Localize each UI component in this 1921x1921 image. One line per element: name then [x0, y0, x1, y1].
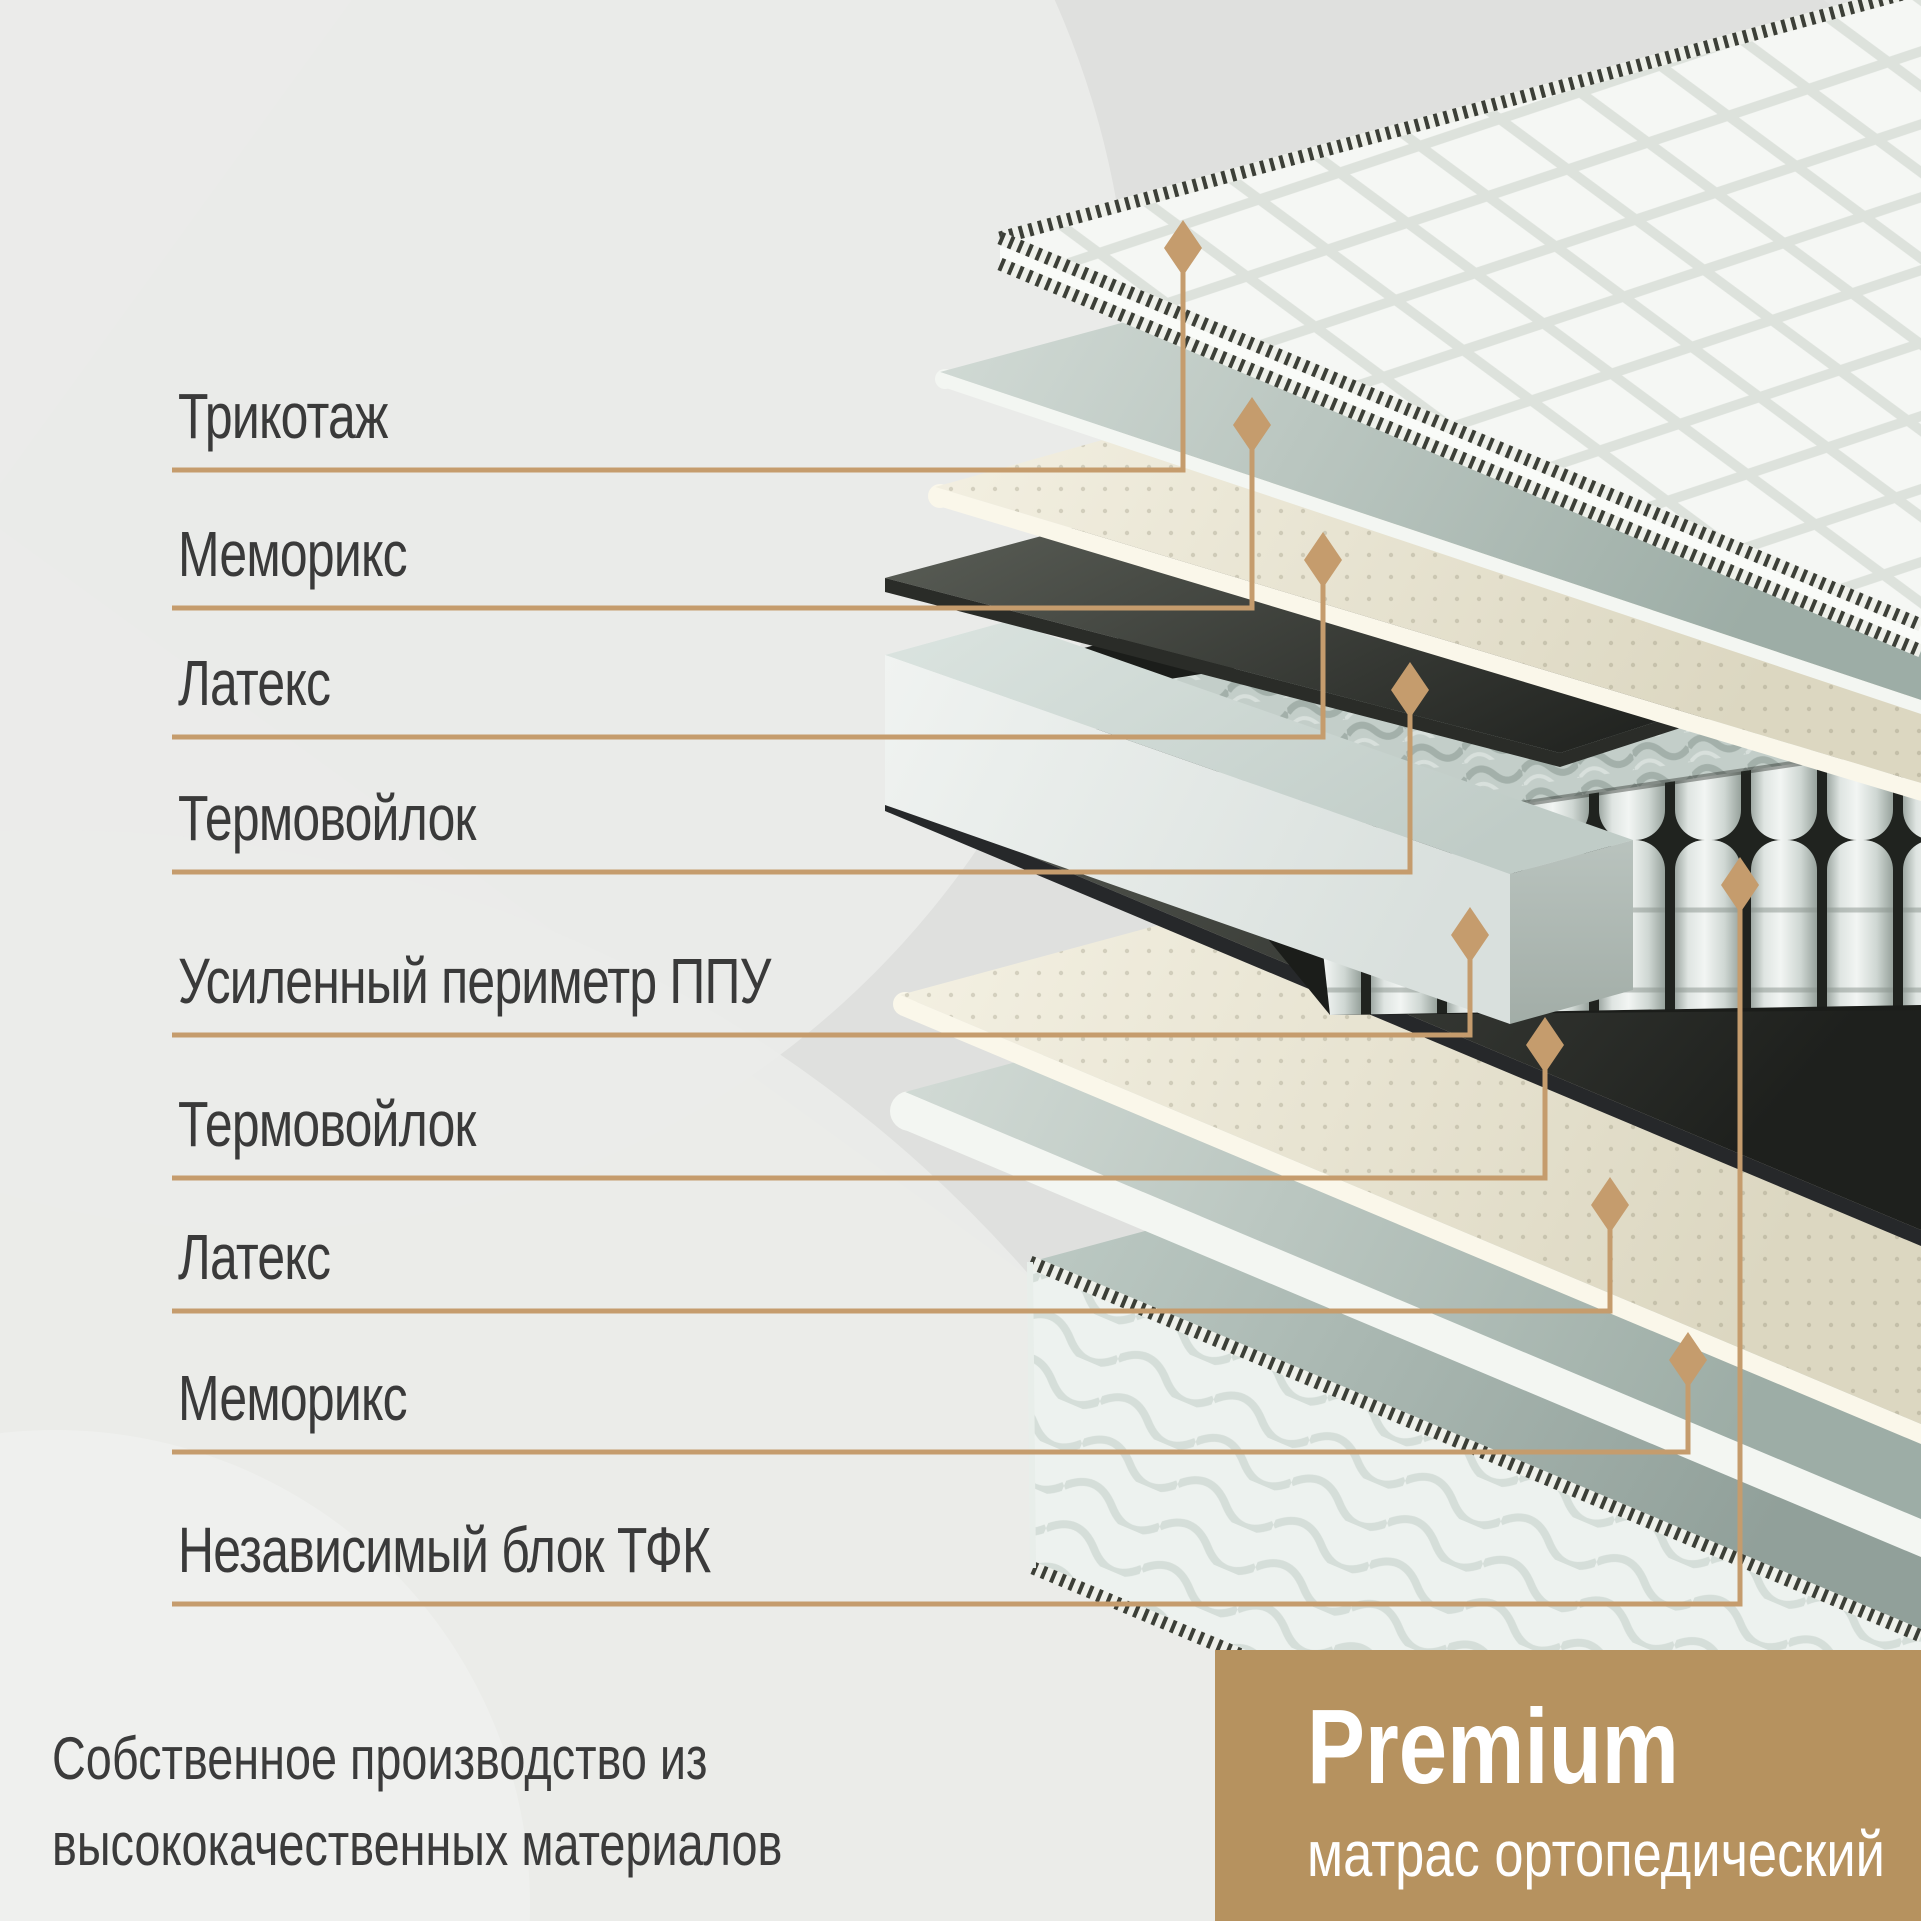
layer-label-2: Меморикс — [178, 522, 471, 586]
layer-label-5: Усиленный периметр ППУ — [178, 949, 938, 1013]
production-note-line1: Собственное производство из — [52, 1716, 988, 1802]
badge-title: Premium — [1307, 1694, 1921, 1800]
layer-label-9: Независимый блок ТФК — [178, 1518, 861, 1582]
infographic-canvas: ТрикотажМемориксЛатексТермовойлокУсиленн… — [0, 0, 1921, 1921]
layer-label-7: Латекс — [178, 1225, 373, 1289]
premium-badge: Premium матрас ортопедический — [1215, 1650, 1921, 1921]
layer-label-8: Меморикс — [178, 1366, 471, 1430]
layer-label-6: Термовойлок — [178, 1092, 560, 1156]
layer-label-3: Латекс — [178, 651, 373, 715]
layer-label-4: Термовойлок — [178, 786, 560, 850]
layer-labels: ТрикотажМемориксЛатексТермовойлокУсиленн… — [0, 0, 1921, 1921]
production-note-line2: высококачественных материалов — [52, 1802, 988, 1888]
production-note: Собственное производство из высококачест… — [52, 1716, 988, 1889]
badge-subtitle: матрас ортопедический — [1307, 1822, 1921, 1886]
layer-label-1: Трикотаж — [178, 384, 447, 448]
